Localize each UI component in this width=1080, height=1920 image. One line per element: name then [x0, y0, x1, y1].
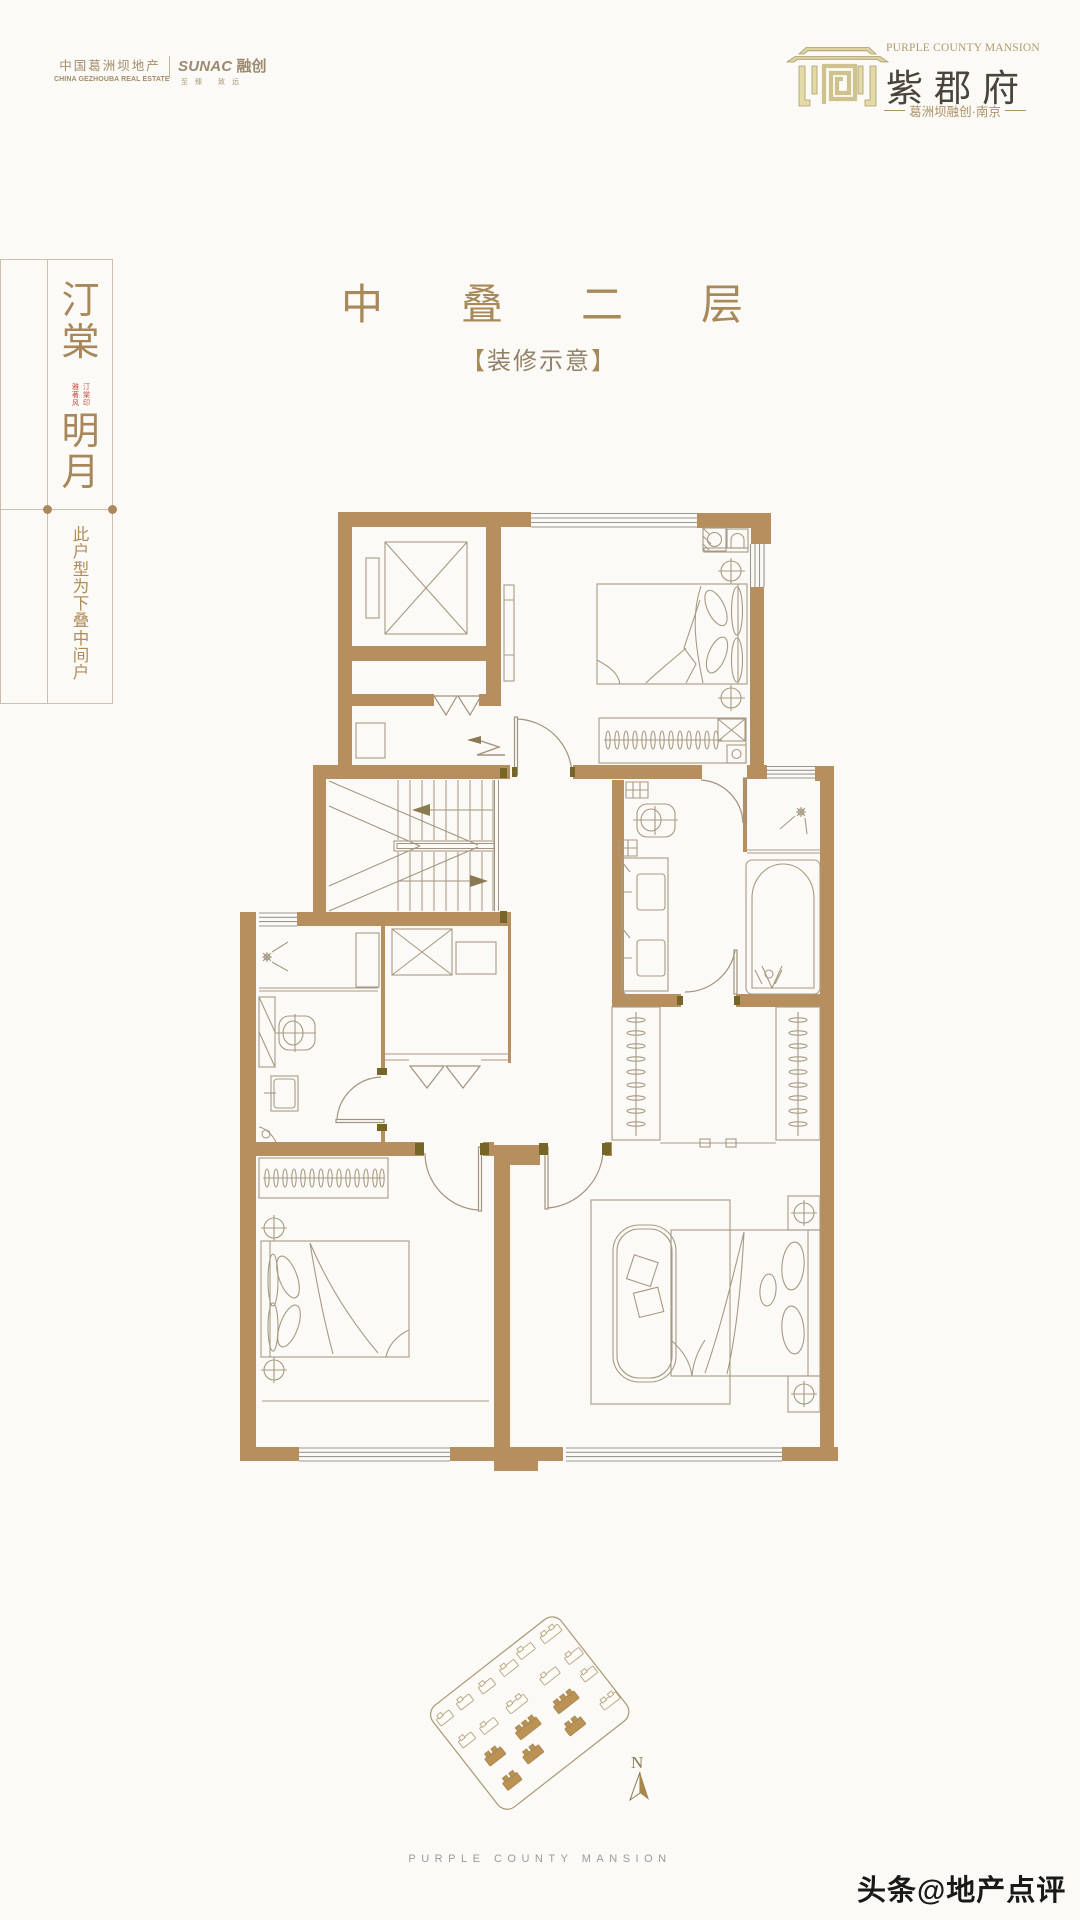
- svg-text:N: N: [631, 1753, 643, 1772]
